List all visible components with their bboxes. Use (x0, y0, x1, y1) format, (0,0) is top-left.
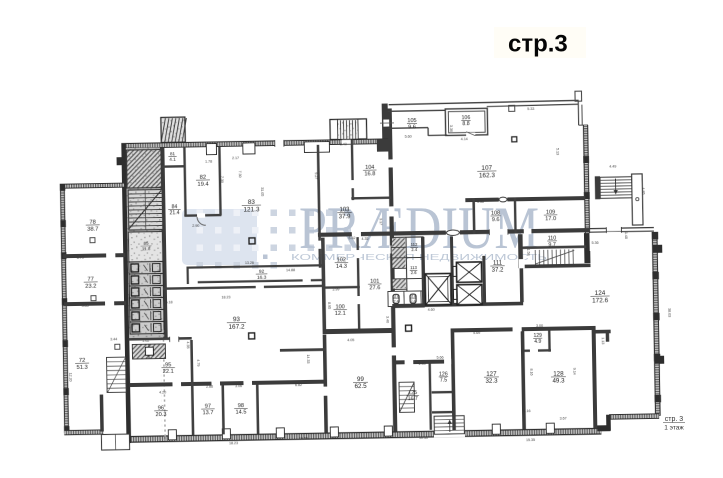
svg-text:3.17: 3.17 (379, 218, 383, 225)
svg-text:6.82: 6.82 (348, 236, 355, 240)
svg-text:128: 128 (553, 370, 564, 377)
svg-text:121.3: 121.3 (243, 206, 260, 213)
svg-text:7.30: 7.30 (238, 171, 242, 178)
svg-text:6.79: 6.79 (77, 256, 84, 260)
svg-text:2.90: 2.90 (192, 224, 199, 228)
svg-text:4.85: 4.85 (641, 188, 645, 195)
svg-text:8.8: 8.8 (462, 121, 469, 127)
svg-text:4.35: 4.35 (186, 342, 190, 349)
svg-text:5.60: 5.60 (405, 135, 412, 139)
svg-text:4.35: 4.35 (361, 237, 368, 241)
svg-text:15.35: 15.35 (526, 438, 535, 442)
svg-text:162.3: 162.3 (479, 172, 496, 179)
svg-text:167.2: 167.2 (228, 323, 245, 330)
svg-text:2.49: 2.49 (419, 362, 426, 366)
svg-text:7.5: 7.5 (440, 378, 447, 384)
svg-text:14.3: 14.3 (336, 264, 347, 270)
svg-text:3.06: 3.06 (235, 384, 242, 388)
svg-text:116: 116 (393, 295, 399, 299)
svg-text:49.3: 49.3 (552, 378, 565, 385)
svg-text:стр.3: стр.3 (508, 31, 568, 58)
svg-text:14.33: 14.33 (306, 354, 310, 363)
svg-text:8.16: 8.16 (529, 369, 533, 376)
svg-text:118: 118 (410, 294, 416, 298)
svg-text:3.67: 3.67 (560, 416, 567, 420)
svg-text:2.4: 2.4 (393, 299, 398, 303)
svg-text:2.4: 2.4 (410, 299, 415, 303)
svg-text:5.16: 5.16 (523, 409, 530, 413)
svg-text:17.0: 17.0 (545, 216, 556, 222)
svg-text:19.4: 19.4 (197, 181, 209, 187)
svg-text:2.17: 2.17 (232, 156, 239, 160)
svg-text:21.4: 21.4 (169, 210, 179, 216)
svg-text:5.18: 5.18 (166, 300, 173, 304)
svg-text:83: 83 (248, 199, 256, 206)
svg-text:23.2: 23.2 (85, 283, 96, 289)
svg-text:5.33: 5.33 (527, 107, 534, 111)
svg-text:2.88: 2.88 (206, 385, 213, 389)
svg-text:3.00: 3.00 (536, 324, 543, 328)
svg-text:62.5: 62.5 (354, 383, 367, 390)
svg-text:1 этаж: 1 этаж (664, 425, 684, 432)
svg-text:3.40: 3.40 (340, 142, 347, 146)
svg-text:14.88: 14.88 (286, 268, 295, 272)
svg-text:4.79: 4.79 (196, 359, 200, 366)
svg-text:19.55: 19.55 (299, 436, 308, 440)
svg-text:18.23: 18.23 (229, 441, 238, 445)
svg-text:6.82: 6.82 (295, 383, 302, 387)
svg-text:13.7: 13.7 (203, 410, 214, 416)
svg-text:37.2: 37.2 (492, 268, 504, 274)
svg-text:9.6: 9.6 (408, 125, 416, 131)
svg-text:16.3: 16.3 (257, 274, 267, 280)
svg-text:172.6: 172.6 (592, 297, 609, 304)
svg-text:5.36: 5.36 (592, 241, 599, 245)
svg-text:99: 99 (357, 376, 365, 383)
svg-text:2.6: 2.6 (411, 270, 418, 275)
svg-text:5.69: 5.69 (473, 331, 480, 335)
svg-text:20.3: 20.3 (156, 412, 167, 418)
svg-text:9.14: 9.14 (572, 368, 576, 375)
svg-text:31.05: 31.05 (260, 187, 264, 196)
svg-text:4.9: 4.9 (534, 339, 541, 345)
svg-text:4.49: 4.49 (609, 165, 616, 169)
svg-text:51.3: 51.3 (77, 365, 88, 371)
svg-text:38.7: 38.7 (87, 226, 98, 232)
svg-text:9.6: 9.6 (492, 217, 500, 223)
svg-text:4.56: 4.56 (477, 200, 484, 204)
svg-text:9.27: 9.27 (314, 172, 318, 179)
svg-text:16.7: 16.7 (408, 396, 418, 402)
svg-text:93: 93 (233, 316, 241, 323)
svg-text:1.48: 1.48 (624, 232, 628, 239)
svg-text:3.40: 3.40 (385, 316, 389, 323)
svg-text:1.58: 1.58 (526, 249, 530, 256)
svg-text:стр. 3: стр. 3 (665, 416, 683, 423)
svg-text:127: 127 (486, 371, 497, 378)
svg-text:38.03: 38.03 (667, 308, 671, 317)
svg-text:4.60: 4.60 (428, 308, 435, 312)
svg-text:14.5: 14.5 (236, 410, 247, 416)
svg-text:124: 124 (595, 290, 606, 297)
svg-text:27.6: 27.6 (369, 285, 380, 291)
svg-text:PRÆDIUM: PRÆDIUM (299, 195, 539, 261)
svg-text:7.30: 7.30 (220, 176, 224, 183)
svg-text:4.05: 4.05 (347, 338, 354, 342)
svg-text:81: 81 (170, 151, 176, 156)
svg-text:4.14: 4.14 (461, 137, 468, 141)
svg-text:3.99: 3.99 (332, 287, 339, 291)
svg-text:1.02: 1.02 (142, 339, 149, 343)
svg-text:3.83: 3.83 (82, 304, 89, 308)
svg-text:2.4: 2.4 (411, 247, 418, 252)
svg-text:16.8: 16.8 (364, 171, 375, 177)
svg-text:32.3: 32.3 (485, 378, 498, 385)
svg-text:4.20: 4.20 (159, 390, 166, 394)
svg-text:10.30: 10.30 (419, 436, 428, 440)
svg-text:1.78: 1.78 (205, 160, 212, 164)
svg-text:3.44: 3.44 (110, 337, 117, 341)
svg-text:3.36: 3.36 (449, 125, 453, 132)
svg-text:8.95: 8.95 (327, 302, 331, 309)
svg-text:4.1: 4.1 (169, 157, 176, 162)
svg-text:1.13: 1.13 (601, 337, 605, 344)
svg-text:12.1: 12.1 (335, 311, 346, 317)
svg-text:37.9: 37.9 (339, 214, 351, 220)
svg-text:18.23: 18.23 (221, 295, 230, 299)
svg-text:5.13: 5.13 (555, 148, 559, 155)
svg-text:5.66: 5.66 (437, 356, 444, 360)
svg-text:12.20: 12.20 (68, 373, 72, 382)
svg-text:22.1: 22.1 (163, 369, 174, 375)
svg-text:107: 107 (481, 165, 492, 172)
svg-text:13.26: 13.26 (245, 261, 254, 265)
svg-text:9.7: 9.7 (548, 242, 556, 248)
